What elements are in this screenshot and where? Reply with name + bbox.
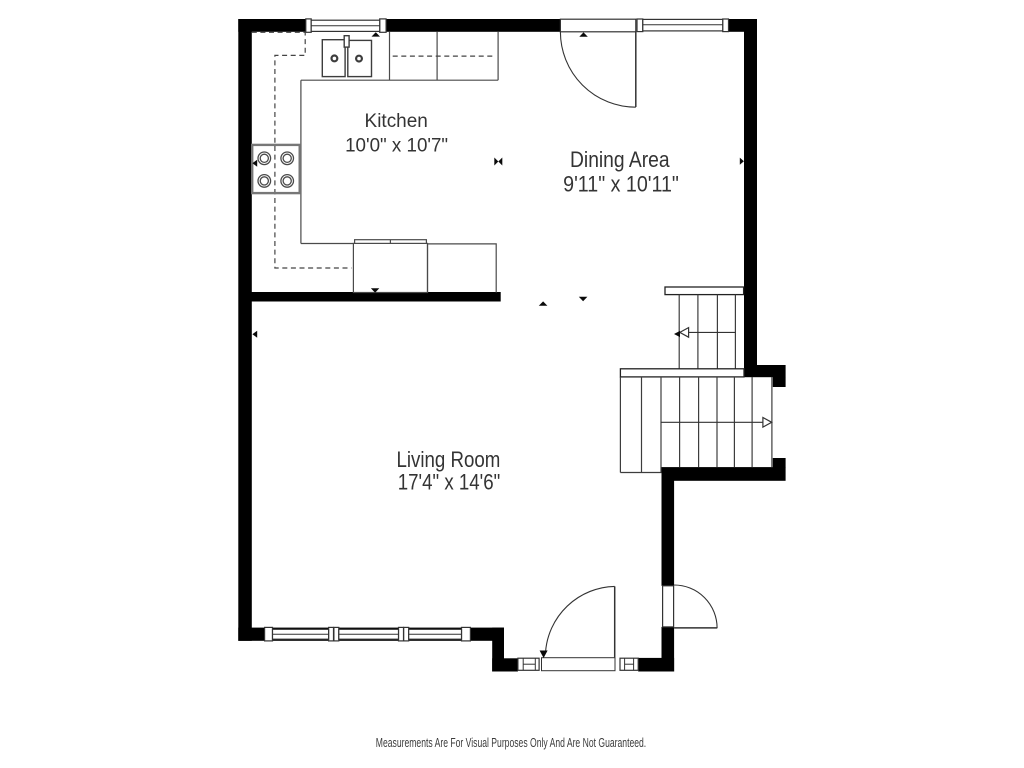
svg-text:Kitchen: Kitchen: [365, 111, 428, 132]
svg-text:10'0" x 10'7": 10'0" x 10'7": [345, 135, 448, 156]
svg-text:Measurements Are For Visual Pu: Measurements Are For Visual Purposes Onl…: [376, 735, 646, 750]
svg-text:17'4" x 14'6": 17'4" x 14'6": [398, 469, 501, 494]
svg-text:9'11" x 10'11": 9'11" x 10'11": [563, 172, 679, 197]
svg-text:Dining Area: Dining Area: [570, 147, 670, 172]
svg-text:Living Room: Living Room: [396, 447, 500, 472]
